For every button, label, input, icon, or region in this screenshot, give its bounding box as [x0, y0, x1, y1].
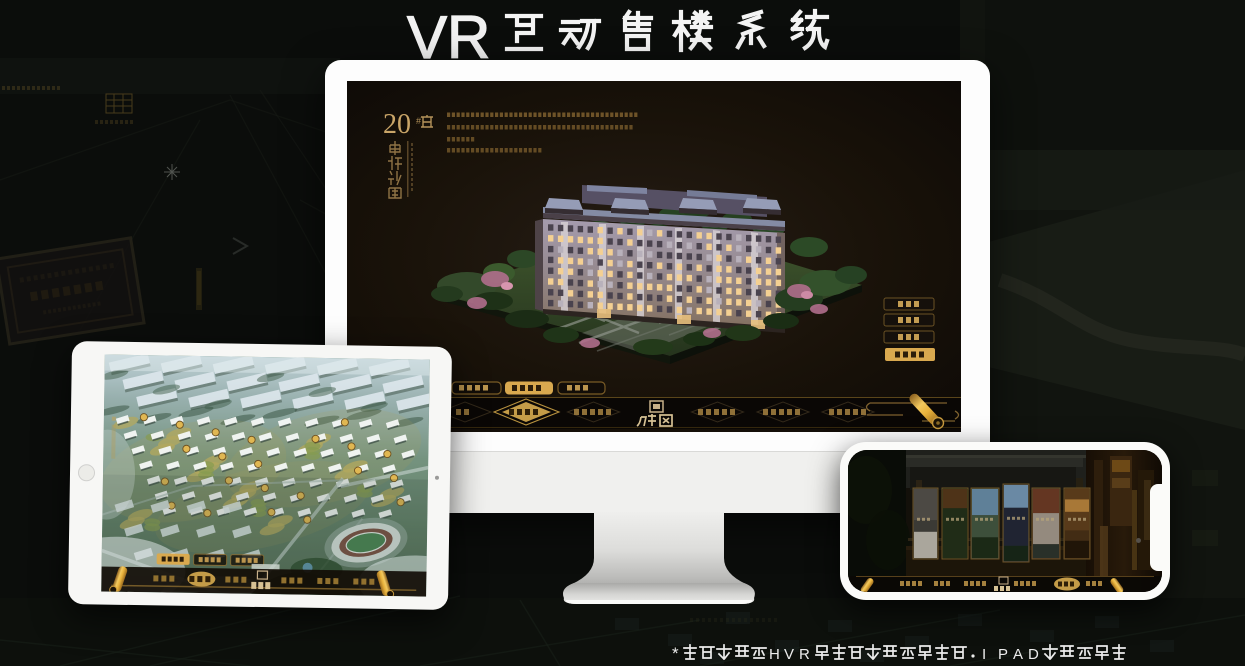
svg-text:I: I	[982, 646, 986, 663]
svg-text:H: H	[769, 646, 780, 663]
svg-text:A: A	[1013, 646, 1023, 663]
svg-text:D: D	[1028, 646, 1039, 663]
svg-text:V: V	[784, 646, 794, 663]
svg-text:*: *	[672, 644, 679, 663]
svg-text:20: 20	[383, 109, 411, 140]
svg-text:P: P	[998, 646, 1008, 663]
svg-text:R: R	[799, 646, 810, 663]
svg-text:#: #	[416, 116, 421, 126]
